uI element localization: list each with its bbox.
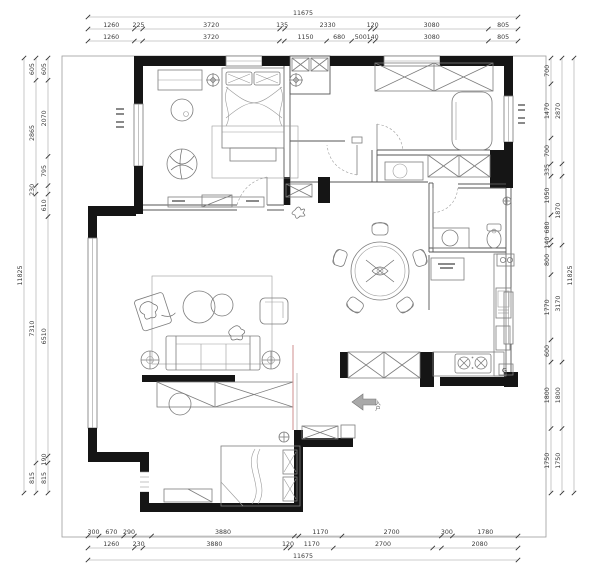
doors (237, 124, 458, 213)
dim-label: 3720 (203, 22, 219, 29)
dim-label: 11675 (293, 553, 313, 560)
dining-chair (412, 248, 429, 267)
stool (171, 99, 193, 121)
dim-label: 3080 (424, 22, 440, 29)
bed-bench (230, 148, 276, 161)
dim-label: 6510 (41, 328, 48, 344)
bathroom (433, 197, 511, 248)
kitchen: G (431, 254, 514, 376)
side-table-symbol (262, 351, 280, 369)
dim-label: 670 (105, 529, 117, 536)
dim-label: 1870 (555, 203, 562, 219)
floor-drain-icon (503, 197, 511, 205)
dim-label: 2700 (375, 541, 391, 548)
dim-label: 700 (544, 145, 551, 157)
dim-label: 11825 (567, 265, 574, 285)
counter-bottom (433, 352, 504, 376)
dim-label: 2700 (384, 529, 400, 536)
dim-label: 1170 (304, 541, 320, 548)
dim-label: 700 (544, 65, 551, 77)
toilet (487, 224, 501, 248)
figure-squiggle (229, 326, 245, 340)
dim-label: 610 (41, 199, 48, 211)
dim-label: 140 (367, 34, 379, 41)
dim-label: 680 (333, 34, 345, 41)
dim-label: 600 (544, 345, 551, 357)
dim-label: 1260 (103, 34, 119, 41)
dim-label: 3170 (555, 296, 562, 312)
bathroom-sink (433, 228, 469, 248)
dim-label: 795 (41, 165, 48, 177)
bedroom2-door (377, 124, 403, 150)
dim-label: 135 (276, 22, 288, 29)
dim-label: 140 (544, 237, 551, 249)
window-ticks (140, 472, 149, 492)
dim-label: 120 (282, 541, 294, 548)
dim-label: 1800 (544, 387, 551, 403)
dim-label: 1750 (555, 453, 562, 469)
dim-label: 815 (41, 472, 48, 484)
kitchen-sink (497, 254, 514, 266)
dim-label: 2870 (555, 103, 562, 119)
shoe-cabinet (385, 162, 423, 180)
bedroom2 (375, 63, 525, 150)
dim-label: 230 (29, 184, 36, 196)
dim-label: 190 (41, 454, 48, 466)
living-room (134, 276, 288, 370)
dim-label: 2070 (41, 110, 48, 126)
corridor-cabinet (348, 352, 420, 378)
wardrobe (375, 63, 493, 91)
bench (164, 489, 212, 502)
fridge (431, 258, 464, 280)
dim-label: 3880 (206, 541, 222, 548)
dim-label: 1780 (477, 529, 493, 536)
sofa (166, 336, 260, 370)
dim-label: 1260 (103, 22, 119, 29)
entry-arrow-icon: 入户 (352, 394, 381, 412)
corridor: 入户 (348, 352, 420, 412)
side-table-round (211, 294, 233, 316)
dining-table (351, 242, 409, 300)
dim-label: 1770 (544, 299, 551, 315)
ceiling-symbol (279, 432, 289, 442)
window-annotation-smudge (116, 108, 124, 128)
dim-label: 2080 (472, 541, 488, 548)
living-rug (152, 276, 272, 364)
hall-cabinet (428, 155, 490, 177)
dim-label: 11675 (293, 10, 313, 17)
coffee-table (183, 291, 215, 323)
dim-label: 2865 (29, 125, 36, 141)
daybed (452, 92, 492, 150)
dim-label: 225 (133, 22, 145, 29)
dim-label: 1470 (544, 103, 551, 119)
ceiling-symbol (289, 73, 303, 87)
master-bedroom (116, 68, 303, 207)
dim-label: 1150 (297, 34, 313, 41)
dim-label: 3720 (203, 34, 219, 41)
dim-label: 335 (544, 164, 551, 176)
dim-label: 1800 (555, 387, 562, 403)
dim-label: 805 (497, 22, 509, 29)
dim-label: 300 (88, 529, 100, 536)
dim-label: 1260 (103, 541, 119, 548)
dim-label: 1750 (544, 453, 551, 469)
dim-label: 500 (355, 34, 367, 41)
bathroom-door (433, 188, 458, 213)
dim-label: 3880 (215, 529, 231, 536)
wardrobe (157, 382, 293, 415)
floor-plan-svg: G (0, 0, 600, 580)
dim-label: 11825 (17, 265, 24, 285)
ceiling-symbol (206, 73, 220, 87)
stove (455, 354, 491, 373)
dim-label: 2330 (320, 22, 336, 29)
dining-chair (331, 248, 348, 267)
floor-plan-sheet: G (0, 0, 600, 580)
side-table-symbol (141, 351, 159, 369)
dining-area (331, 223, 428, 315)
window-annotation-smudge (518, 104, 525, 124)
interior-walls (142, 66, 506, 382)
dining-chair (345, 295, 365, 315)
dim-label: 680 (544, 221, 551, 233)
dim-label: 605 (29, 63, 36, 75)
dim-label: 815 (29, 472, 36, 484)
dining-chair (395, 295, 415, 315)
bedroom3 (157, 345, 355, 506)
dim-label: 230 (133, 541, 145, 548)
plant (292, 207, 305, 218)
gas-meter-label: G (502, 367, 507, 375)
bed3 (221, 446, 300, 506)
armchair (260, 298, 288, 324)
dim-label: 290 (123, 529, 135, 536)
dim-label: 605 (41, 63, 48, 75)
dim-label: 1050 (544, 188, 551, 204)
dim-label: 1170 (312, 529, 328, 536)
dim-label: 805 (497, 34, 509, 41)
lounge-chair (134, 290, 178, 332)
dim-label: 7310 (29, 321, 36, 337)
entry-arrow-label: 入户 (374, 400, 381, 412)
dim-label: 300 (441, 529, 453, 536)
dim-label: 3080 (424, 34, 440, 41)
hall-shelf (302, 425, 355, 439)
papasan-chair (167, 149, 197, 179)
duct-closet (286, 58, 328, 197)
bedroom-rug (212, 126, 298, 178)
dim-label: 800 (544, 254, 551, 266)
dim-label: 120 (367, 22, 379, 29)
dining-chair (372, 223, 388, 236)
exterior-walls (88, 56, 518, 512)
master-bed (222, 68, 284, 148)
main-entry-door (327, 145, 357, 175)
